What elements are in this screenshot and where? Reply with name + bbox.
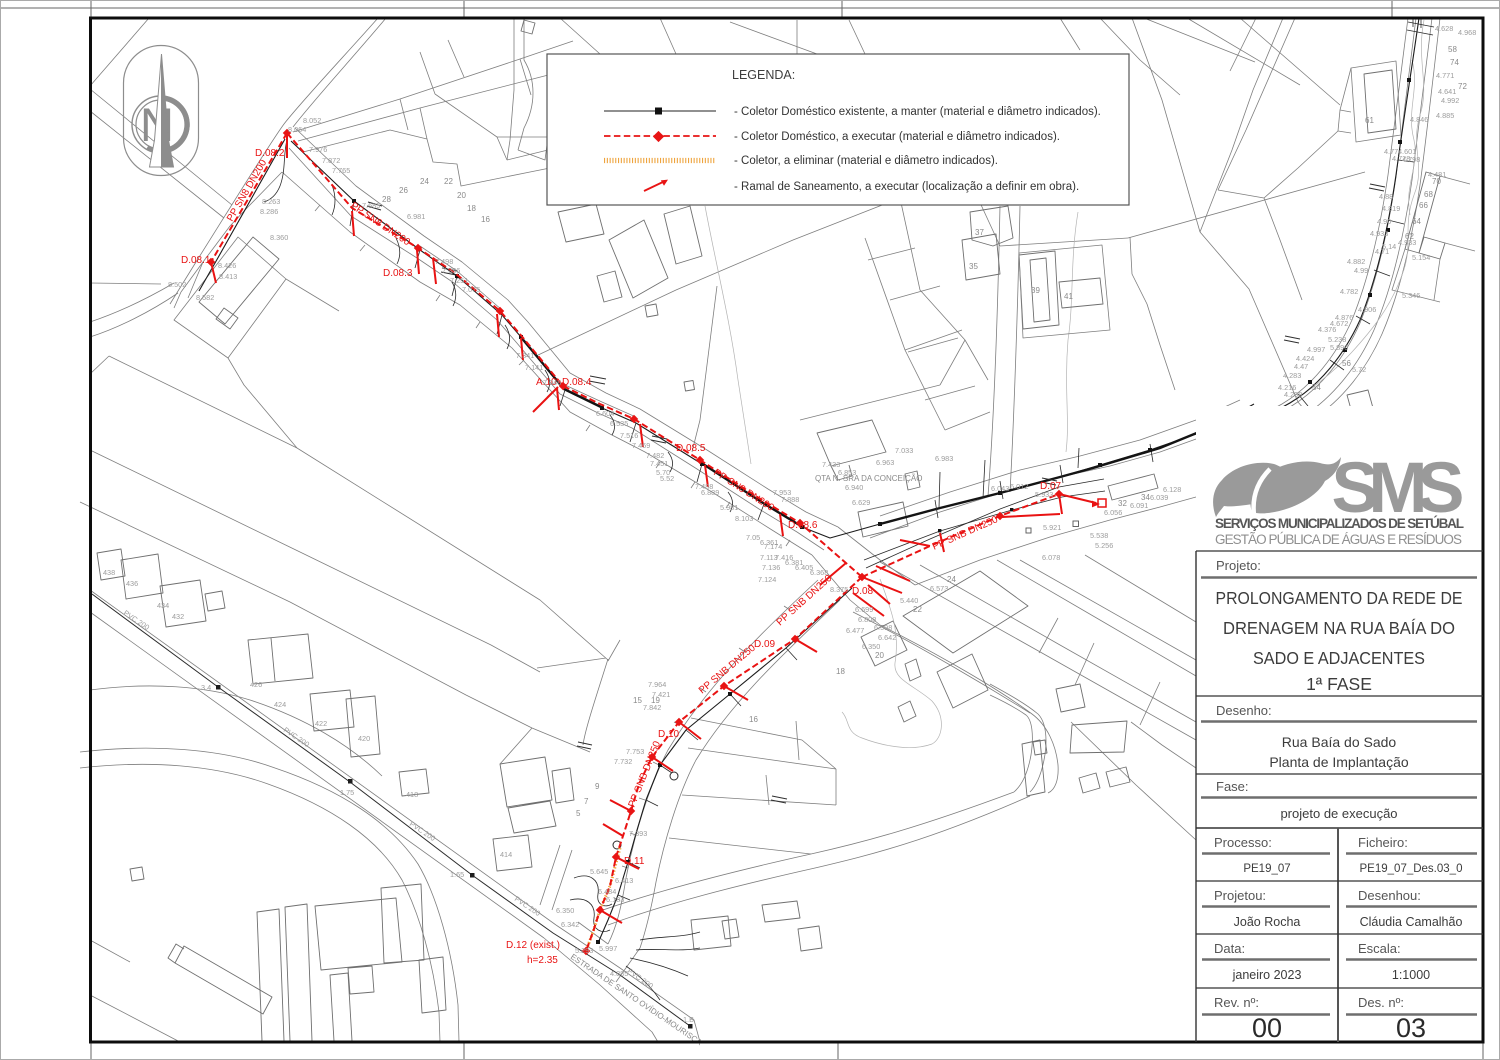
svg-text:5.890: 5.890: [1330, 343, 1348, 352]
svg-text:7.113: 7.113: [760, 553, 778, 562]
svg-text:7.469: 7.469: [632, 441, 650, 450]
svg-text:5.933: 5.933: [1035, 490, 1053, 499]
svg-text:4.782: 4.782: [1340, 287, 1358, 296]
svg-text:4.90: 4.90: [1377, 217, 1391, 226]
svg-text:6.342: 6.342: [561, 920, 579, 929]
svg-text:6.012: 6.012: [1010, 482, 1028, 491]
svg-text:6.963: 6.963: [876, 458, 894, 467]
svg-text:7.075: 7.075: [462, 285, 480, 294]
svg-text:6.983: 6.983: [935, 454, 953, 463]
svg-text:GESTÃO PÚBLICA DE ÁGUAS E RESÍ: GESTÃO PÚBLICA DE ÁGUAS E RESÍDUOS: [1215, 532, 1462, 547]
svg-text:7.136: 7.136: [762, 563, 780, 572]
svg-text:Projeto:: Projeto:: [1216, 558, 1261, 573]
svg-text:4.882: 4.882: [1347, 257, 1365, 266]
svg-text:16: 16: [749, 715, 758, 724]
svg-text:74: 74: [1450, 58, 1459, 67]
svg-text:16: 16: [481, 215, 490, 224]
svg-text:438: 438: [103, 568, 115, 577]
svg-text:436: 436: [126, 579, 138, 588]
svg-text:4.997: 4.997: [1307, 345, 1325, 354]
svg-text:8.413: 8.413: [219, 272, 237, 281]
svg-text:D.11: D.11: [624, 856, 645, 867]
svg-text:4.298: 4.298: [1284, 390, 1302, 399]
svg-text:7.685: 7.685: [362, 201, 380, 210]
svg-text:422: 422: [315, 719, 327, 728]
svg-text:56: 56: [1342, 359, 1351, 368]
svg-text:6.629: 6.629: [852, 498, 870, 507]
svg-text:Data:: Data:: [1214, 941, 1245, 956]
svg-text:1.75: 1.75: [340, 788, 354, 797]
svg-text:Processo:: Processo:: [1214, 835, 1272, 850]
svg-text:7.141: 7.141: [525, 363, 543, 372]
svg-text:Des. nº:: Des. nº:: [1358, 995, 1404, 1010]
svg-text:Desenho:: Desenho:: [1216, 703, 1272, 718]
svg-text:37: 37: [975, 228, 984, 237]
svg-text:6.573: 6.573: [930, 584, 948, 593]
svg-text:Desenhou:: Desenhou:: [1358, 888, 1421, 903]
svg-text:6.853: 6.853: [838, 468, 856, 477]
svg-text:00: 00: [1252, 1013, 1282, 1043]
svg-text:6.981: 6.981: [407, 212, 425, 221]
svg-text:SERVIÇOS MUNICIPALIZADOS DE SE: SERVIÇOS MUNICIPALIZADOS DE SETÚBAL: [1215, 516, 1464, 531]
svg-text:18: 18: [467, 204, 476, 213]
svg-text:22: 22: [913, 605, 922, 614]
svg-text:6.477: 6.477: [846, 626, 864, 635]
svg-text:3.4: 3.4: [201, 683, 211, 692]
svg-text:58: 58: [1448, 45, 1457, 54]
svg-text:projeto de execução: projeto de execução: [1280, 806, 1397, 821]
svg-text:8.360: 8.360: [270, 233, 288, 242]
svg-text:4.992: 4.992: [1441, 96, 1459, 105]
svg-text:- Coletor Doméstico, a executa: - Coletor Doméstico, a executar (materia…: [734, 131, 1060, 143]
svg-text:03: 03: [1396, 1013, 1426, 1043]
svg-text:5.72: 5.72: [1352, 365, 1366, 374]
svg-text:8.375: 8.375: [830, 585, 848, 594]
svg-text:4.47: 4.47: [1294, 362, 1308, 371]
svg-text:7.888: 7.888: [781, 495, 799, 504]
svg-text:7.872: 7.872: [322, 156, 340, 165]
svg-text:5.997: 5.997: [599, 944, 617, 953]
svg-text:4.933: 4.933: [1370, 229, 1388, 238]
svg-text:20: 20: [875, 651, 884, 660]
svg-text:8.426: 8.426: [218, 261, 236, 270]
svg-text:PE19_07_Des.03_0: PE19_07_Des.03_0: [1360, 863, 1463, 875]
svg-text:4.846: 4.846: [1410, 115, 1428, 124]
svg-text:6.350: 6.350: [862, 642, 880, 651]
svg-text:34: 34: [1141, 493, 1150, 502]
svg-text:7.386: 7.386: [442, 266, 460, 275]
svg-text:434: 434: [157, 601, 169, 610]
svg-text:6.091: 6.091: [1130, 501, 1148, 510]
svg-text:Ficheiro:: Ficheiro:: [1358, 835, 1408, 850]
svg-text:424: 424: [274, 700, 286, 709]
svg-text:6.128: 6.128: [1163, 485, 1181, 494]
svg-text:28: 28: [382, 195, 391, 204]
svg-text:4.771: 4.771: [1436, 71, 1454, 80]
svg-text:18: 18: [836, 667, 845, 676]
svg-text:6.043: 6.043: [991, 484, 1009, 493]
svg-text:D.08.1: D.08.1: [181, 255, 211, 266]
svg-text:61: 61: [1365, 116, 1374, 125]
svg-text:DRENAGEM NA RUA BAÍA DO: DRENAGEM NA RUA BAÍA DO: [1223, 618, 1455, 638]
svg-text:5.921: 5.921: [1043, 523, 1061, 532]
svg-text:8.064: 8.064: [288, 125, 306, 134]
svg-text:6.368: 6.368: [810, 568, 828, 577]
svg-text:32: 32: [1118, 499, 1127, 508]
svg-text:418: 418: [406, 790, 418, 799]
svg-text:D.08.6: D.08.6: [788, 520, 818, 531]
svg-text:66: 66: [1419, 201, 1428, 210]
svg-text:20: 20: [457, 191, 466, 200]
svg-text:5.981: 5.981: [720, 503, 738, 512]
svg-text:7.516: 7.516: [620, 431, 638, 440]
svg-text:7.451: 7.451: [650, 459, 668, 468]
svg-text:5.645: 5.645: [590, 867, 608, 876]
svg-text:7.393: 7.393: [629, 829, 647, 838]
svg-text:24: 24: [947, 575, 956, 584]
svg-text:8.286: 8.286: [260, 207, 278, 216]
svg-text:João Rocha: João Rocha: [1234, 915, 1301, 929]
svg-text:D.08.2: D.08.2: [255, 148, 285, 159]
svg-text:22: 22: [444, 177, 453, 186]
svg-text:7.753: 7.753: [626, 747, 644, 756]
svg-text:4.641: 4.641: [1438, 87, 1456, 96]
svg-text:7.05: 7.05: [746, 533, 760, 542]
svg-text:4.968: 4.968: [1458, 28, 1476, 37]
svg-text:PE19_07: PE19_07: [1243, 863, 1290, 875]
svg-text:4.819: 4.819: [1382, 204, 1400, 213]
svg-text:5.538: 5.538: [1090, 531, 1108, 540]
svg-text:39: 39: [1031, 286, 1040, 295]
svg-text:5.440: 5.440: [900, 596, 918, 605]
svg-text:6.183: 6.183: [606, 895, 624, 904]
svg-text:LEGENDA:: LEGENDA:: [732, 68, 795, 82]
svg-text:6.598: 6.598: [874, 623, 892, 632]
svg-text:- Coletor, a eliminar (materia: - Coletor, a eliminar (material e diâmet…: [734, 155, 998, 167]
svg-text:19: 19: [651, 696, 660, 705]
svg-text:26: 26: [399, 186, 408, 195]
svg-text:41: 41: [1064, 292, 1073, 301]
svg-text:6.350: 6.350: [556, 906, 574, 915]
svg-text:Fase:: Fase:: [1216, 779, 1249, 794]
svg-text:35: 35: [969, 262, 978, 271]
svg-text:414: 414: [500, 850, 512, 859]
svg-text:72: 72: [1458, 82, 1467, 91]
svg-text:64: 64: [1412, 217, 1421, 226]
svg-text:4.885: 4.885: [1436, 111, 1454, 120]
svg-text:D.08.3: D.08.3: [383, 268, 413, 279]
svg-text:54: 54: [1312, 383, 1321, 392]
svg-text:h=2.35: h=2.35: [527, 955, 558, 966]
svg-text:Planta de Implantação: Planta de Implantação: [1269, 754, 1409, 770]
svg-text:8.502: 8.502: [168, 280, 186, 289]
svg-text:1:1000: 1:1000: [1392, 968, 1430, 982]
svg-text:SADO E ADJACENTES: SADO E ADJACENTES: [1253, 648, 1425, 668]
svg-text:9: 9: [595, 782, 600, 791]
svg-text:D.08.5: D.08.5: [676, 443, 706, 454]
svg-text:1.65: 1.65: [450, 870, 464, 879]
svg-text:7.498: 7.498: [435, 257, 453, 266]
svg-text:4.885: 4.885: [610, 969, 628, 978]
svg-text:1.B: 1.B: [683, 1015, 694, 1024]
svg-text:8.582: 8.582: [196, 293, 214, 302]
svg-text:6.699: 6.699: [855, 605, 873, 614]
svg-text:1ª FASE: 1ª FASE: [1306, 674, 1372, 694]
svg-text:7.124: 7.124: [758, 575, 776, 584]
svg-text:5.154: 5.154: [1412, 253, 1430, 262]
svg-text:5.256: 5.256: [1095, 541, 1113, 550]
svg-text:5.52: 5.52: [660, 474, 674, 483]
svg-text:4.71: 4.71: [1375, 247, 1389, 256]
svg-text:janeiro 2023: janeiro 2023: [1232, 968, 1302, 982]
svg-text:D.08.4: D.08.4: [562, 377, 592, 388]
svg-text:6.413: 6.413: [615, 876, 633, 885]
svg-text:7.174: 7.174: [764, 542, 782, 551]
svg-text:4.798: 4.798: [1402, 155, 1420, 164]
svg-text:4.906: 4.906: [1358, 305, 1376, 314]
svg-text:8.103: 8.103: [735, 514, 753, 523]
svg-text:5.293: 5.293: [575, 946, 593, 955]
svg-text:- Coletor Doméstico existente,: - Coletor Doméstico existente, a manter …: [734, 106, 1101, 118]
svg-text:68: 68: [1424, 190, 1433, 199]
svg-text:5.346: 5.346: [1402, 291, 1420, 300]
svg-text:7.732: 7.732: [614, 757, 632, 766]
svg-text:QTA N. SRA DA CONCEIÇÃO: QTA N. SRA DA CONCEIÇÃO: [815, 474, 922, 483]
svg-text:D.09: D.09: [754, 639, 776, 650]
svg-text:7.976: 7.976: [309, 145, 327, 154]
svg-text:D.12 (exist.): D.12 (exist.): [506, 940, 560, 951]
svg-text:420: 420: [358, 734, 370, 743]
svg-text:6.604: 6.604: [596, 409, 614, 418]
svg-text:6.940: 6.940: [845, 483, 863, 492]
svg-text:7.765: 7.765: [332, 166, 350, 175]
svg-text:D.10: D.10: [658, 729, 680, 740]
svg-text:6.889: 6.889: [701, 488, 719, 497]
svg-text:6.078: 6.078: [1042, 553, 1060, 562]
svg-text:7.341: 7.341: [516, 351, 534, 360]
svg-text:6.039: 6.039: [1150, 493, 1168, 502]
svg-text:6.056: 6.056: [1104, 508, 1122, 517]
svg-text:6.642: 6.642: [878, 633, 896, 642]
svg-text:D.08: D.08: [852, 586, 874, 597]
svg-text:8.052: 8.052: [303, 116, 321, 125]
svg-text:7.046: 7.046: [543, 378, 561, 387]
svg-text:4.376: 4.376: [1318, 325, 1336, 334]
svg-text:15: 15: [633, 696, 642, 705]
svg-text:6.535: 6.535: [610, 419, 628, 428]
svg-text:Rev. nº:: Rev. nº:: [1214, 995, 1259, 1010]
svg-text:7.251: 7.251: [450, 276, 468, 285]
svg-text:5: 5: [576, 809, 581, 818]
svg-text:PROLONGAMENTO DA REDE DE: PROLONGAMENTO DA REDE DE: [1216, 588, 1463, 608]
svg-text:Cláudia Camalhão: Cláudia Camalhão: [1360, 915, 1463, 929]
svg-text:70: 70: [1432, 177, 1441, 186]
svg-text:Projetou:: Projetou:: [1214, 888, 1266, 903]
svg-text:Escala:: Escala:: [1358, 941, 1401, 956]
svg-text:- Ramal de Saneamento, a execu: - Ramal de Saneamento, a executar (local…: [734, 181, 1079, 193]
svg-text:4.99: 4.99: [1354, 266, 1368, 275]
svg-text:Rua Baía do Sado: Rua Baía do Sado: [1282, 734, 1397, 750]
svg-text:8.263: 8.263: [262, 197, 280, 206]
svg-text:4.628: 4.628: [1435, 24, 1453, 33]
svg-text:7: 7: [584, 797, 589, 806]
svg-text:4.283: 4.283: [1283, 371, 1301, 380]
svg-text:7.964: 7.964: [648, 680, 666, 689]
svg-text:24: 24: [420, 177, 429, 186]
svg-text:62: 62: [1405, 232, 1414, 241]
svg-text:7.033: 7.033: [895, 446, 913, 455]
svg-text:4.88: 4.88: [1379, 192, 1393, 201]
svg-text:432: 432: [172, 612, 184, 621]
svg-text:426: 426: [250, 680, 262, 689]
